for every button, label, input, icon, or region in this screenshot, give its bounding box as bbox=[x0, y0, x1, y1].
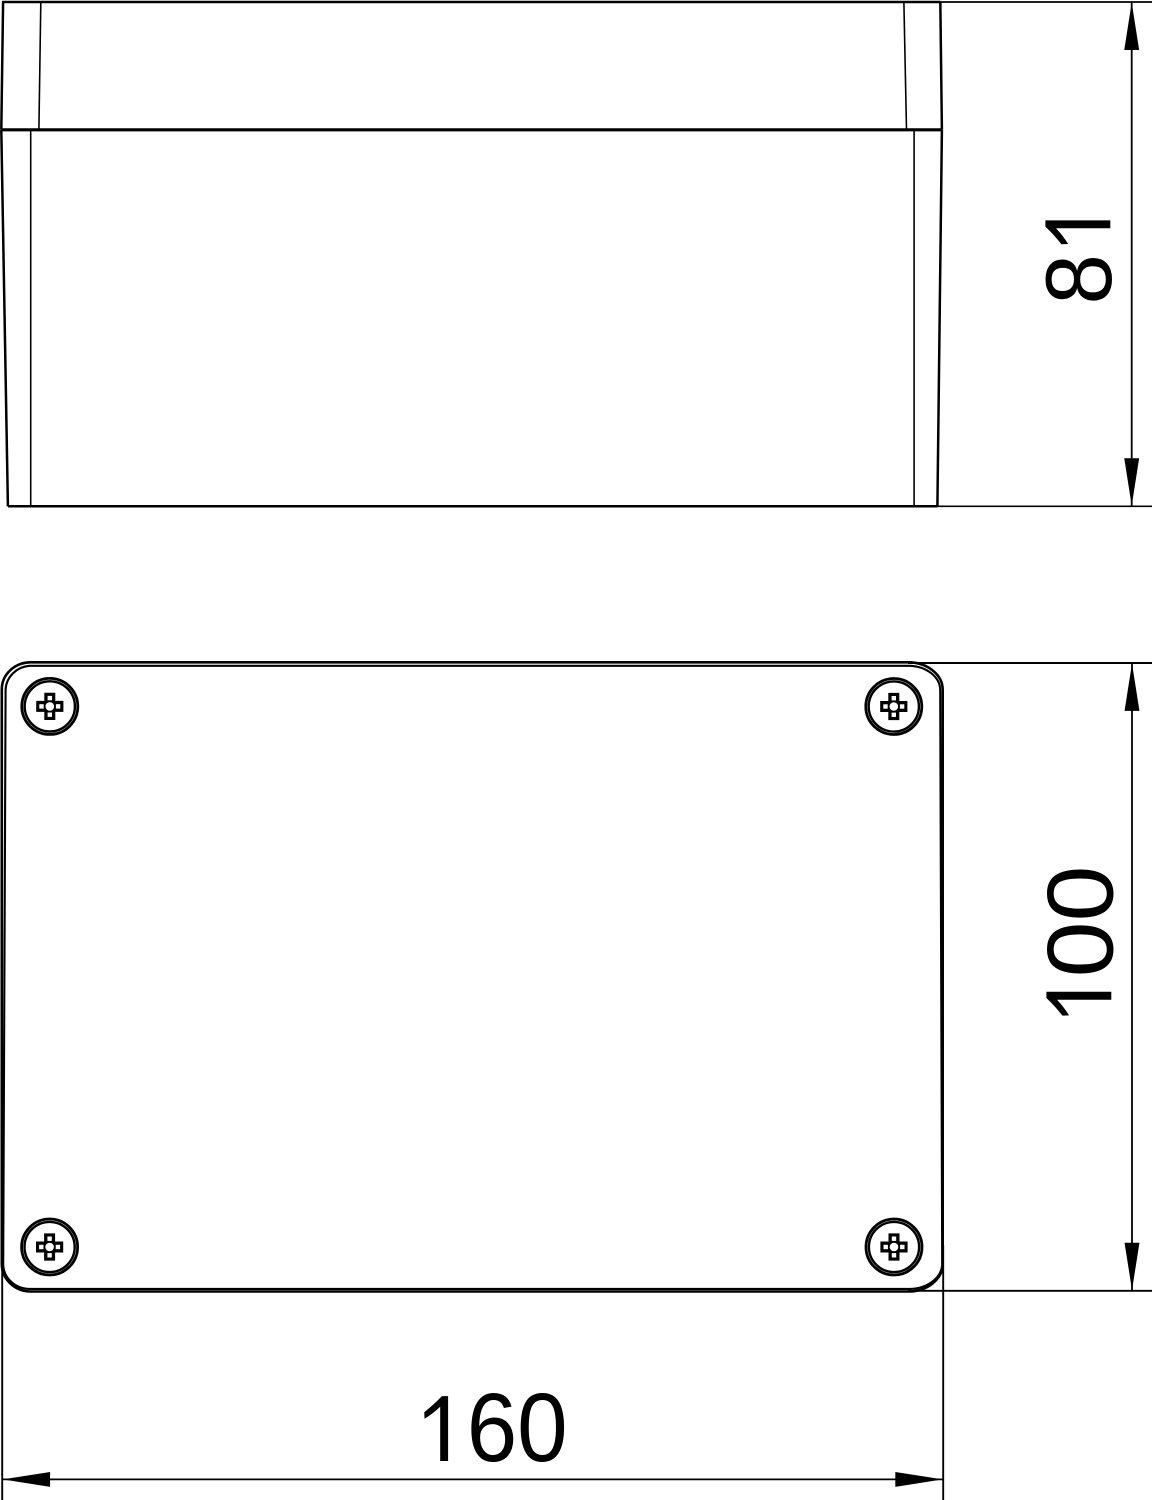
svg-text:60: 60 bbox=[467, 1373, 568, 1482]
svg-text:00: 00 bbox=[1027, 866, 1132, 978]
svg-text:8: 8 bbox=[1026, 254, 1131, 305]
